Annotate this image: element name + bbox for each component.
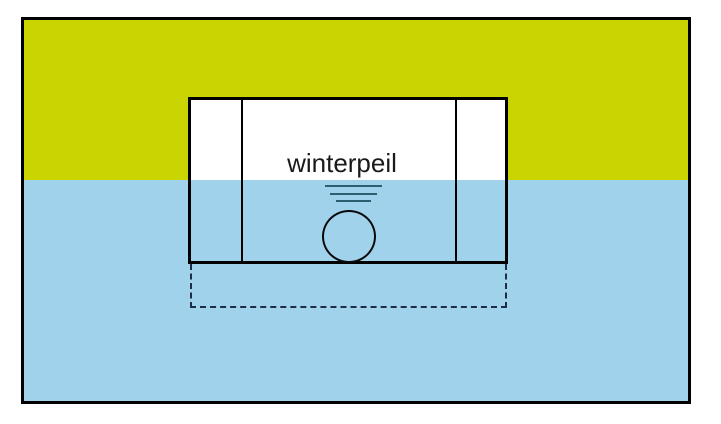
water-level-label: winterpeil	[236, 149, 448, 177]
diagram-canvas: winterpeil	[0, 0, 721, 424]
circle-marker	[322, 210, 376, 263]
caisson-wall-right-inner	[455, 100, 457, 261]
water-level-icon	[336, 200, 371, 202]
caisson-wall-left-inner	[241, 100, 243, 261]
water-level-icon	[325, 185, 382, 187]
water-level-icon	[330, 193, 377, 195]
submerged-position-dashed-outline	[190, 264, 507, 308]
